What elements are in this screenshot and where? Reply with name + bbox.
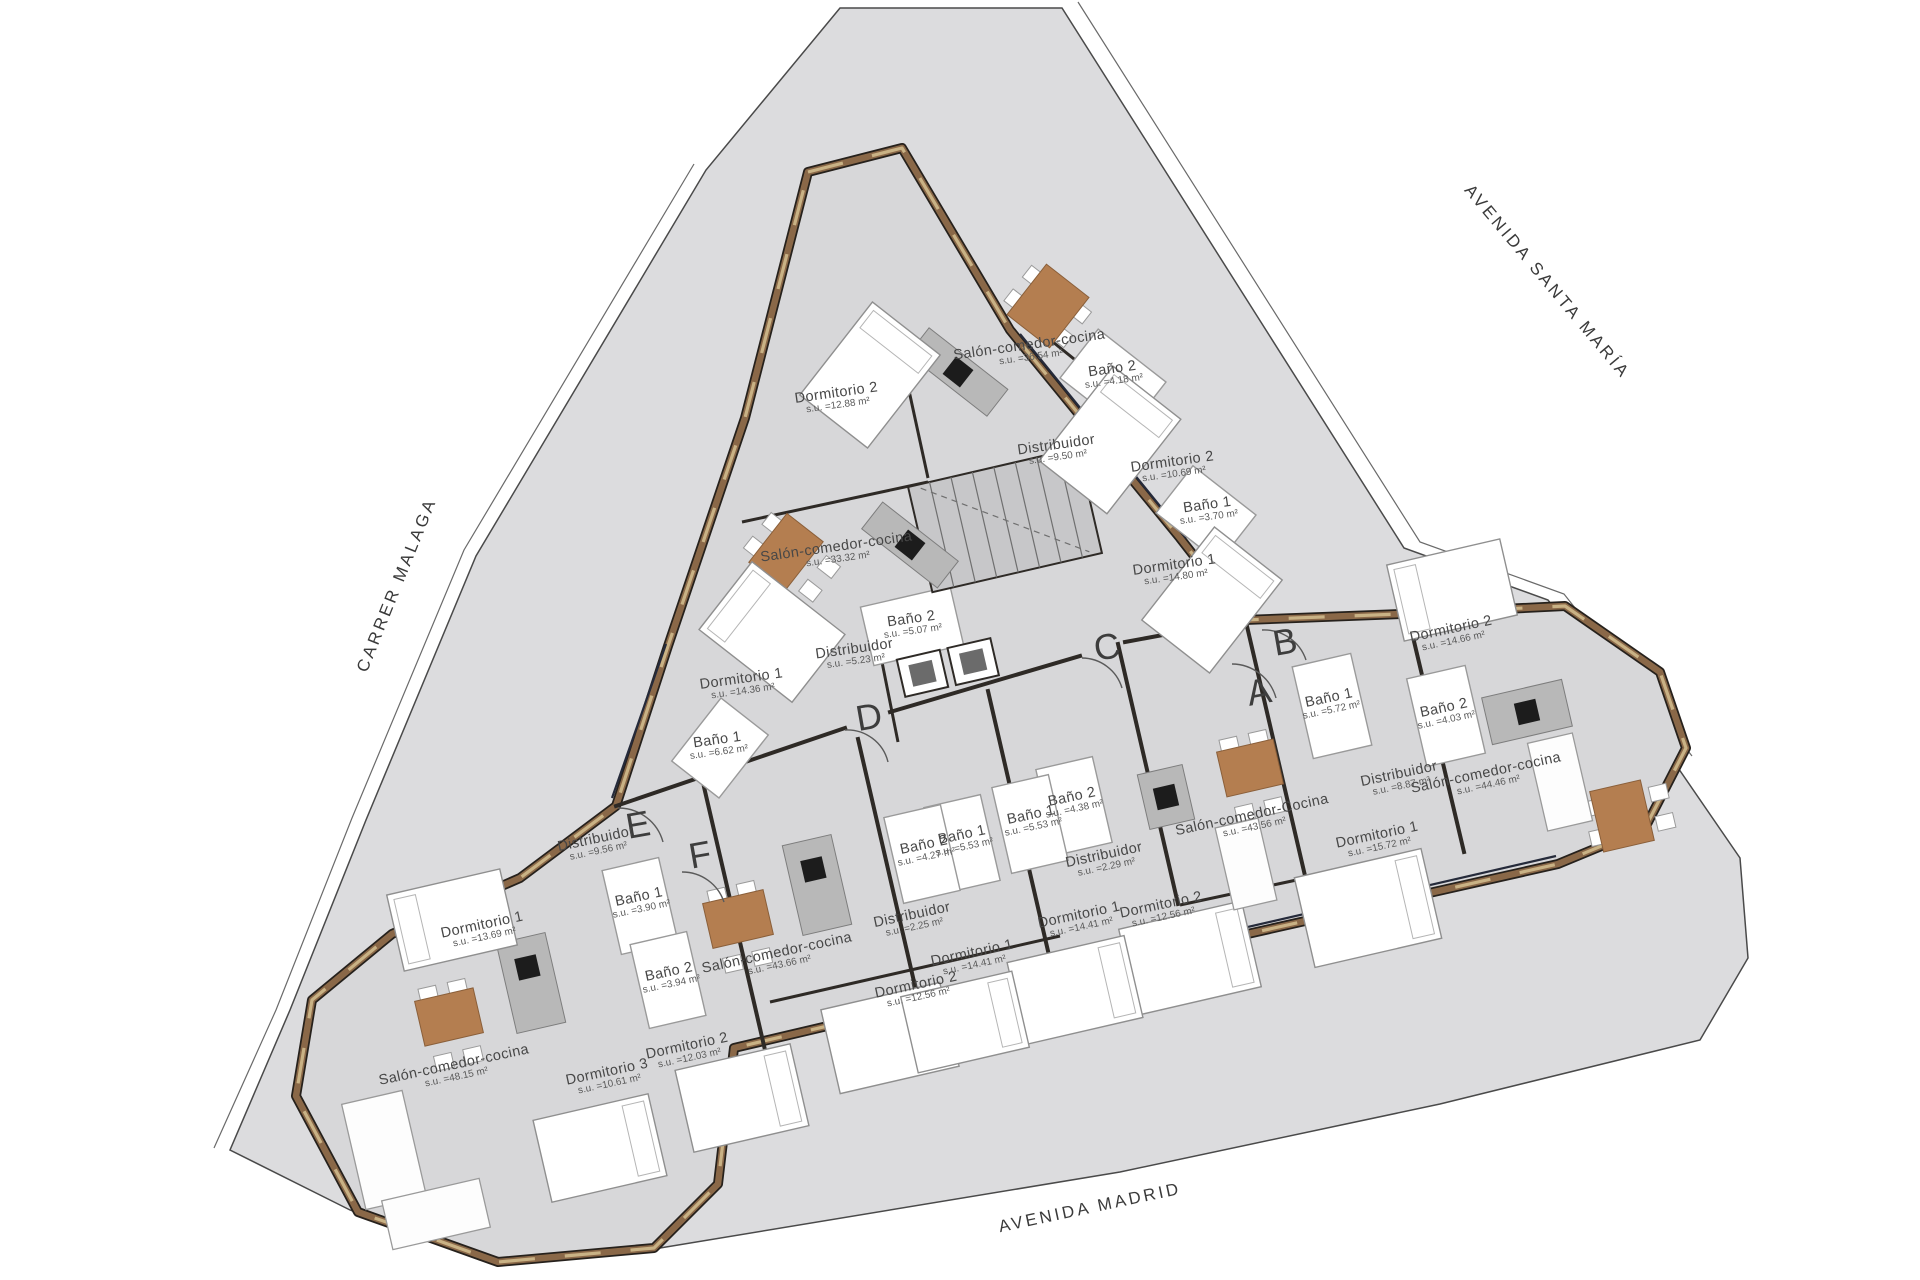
floor-plan: AVENIDA SANTA MARÍACARRER MALAGAAVENIDA …	[0, 0, 1920, 1280]
plan-drawing	[0, 0, 1920, 1280]
